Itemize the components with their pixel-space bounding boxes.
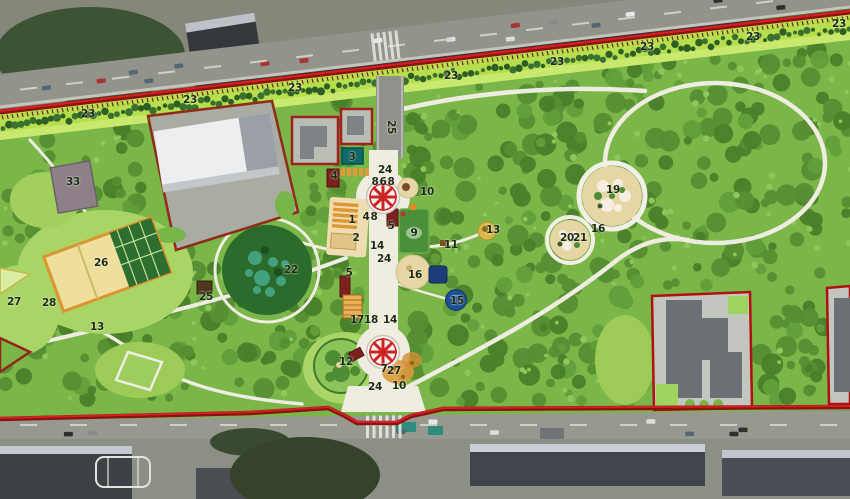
teal-structure-3 <box>342 148 363 164</box>
playground-9 <box>399 204 429 253</box>
satellite-bottom <box>0 405 850 499</box>
water-feature-15 <box>446 290 467 311</box>
school-parcel <box>652 292 752 410</box>
pavilion-13 <box>478 222 496 240</box>
utility-buildings <box>292 109 372 164</box>
building-33 <box>50 161 97 213</box>
park-master-plan-map: 2323232323232323252524242486812344855791… <box>0 0 850 499</box>
right-edge-parcel <box>827 286 850 404</box>
steps-17 <box>343 295 362 318</box>
clearing-19 <box>579 163 645 229</box>
pavilion-10 <box>398 178 418 198</box>
structure-11 <box>440 240 448 246</box>
pavilion-16 <box>396 255 430 289</box>
map-canvas <box>0 0 850 499</box>
amphitheater-1-2 <box>326 197 370 258</box>
structure-25 <box>197 281 212 294</box>
clearing-20-21 <box>547 217 593 263</box>
dense-grove-22 <box>222 225 312 315</box>
water-feature-rect <box>429 266 447 283</box>
